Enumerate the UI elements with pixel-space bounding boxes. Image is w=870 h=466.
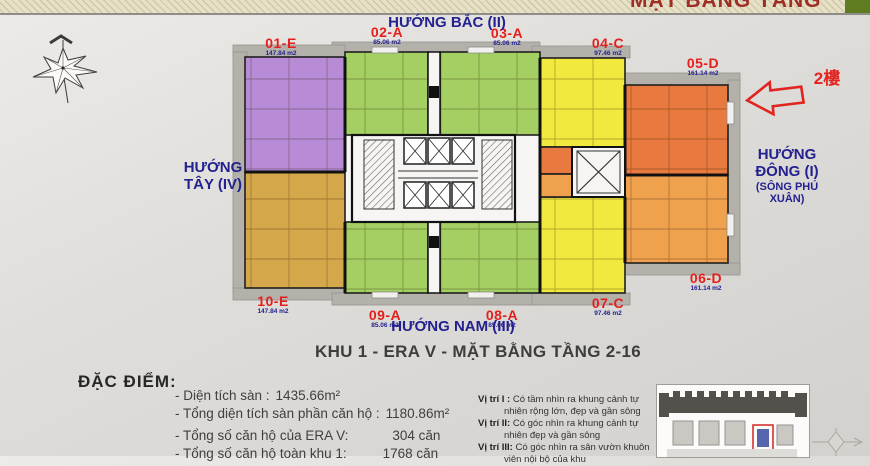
direction-west-label: HƯỚNG TÂY (IV) <box>172 160 254 194</box>
unit-region-05-d-mid <box>540 147 572 174</box>
feature-row: - Tổng số căn hộ toàn khu 1:1768 căn <box>175 445 449 463</box>
direction-east-label: HƯỚNG ĐÔNG (I) (SÔNG PHÚ XUÂN) <box>744 147 830 205</box>
stair-left <box>364 140 394 209</box>
viewpoint-item: Vị trí III: Có góc nhìn ra sân vườn khuô… <box>478 442 664 465</box>
unit-label-06-d: 06-D161.14 m2 <box>690 271 722 293</box>
compass-small-icon <box>812 428 862 456</box>
stair-right <box>482 140 512 209</box>
feature-row: - Tổng diện tích sàn phần căn hộ :1180.8… <box>175 405 449 423</box>
site-map-highlight-blue <box>757 429 769 447</box>
features-heading: ĐẶC ĐIỂM: <box>78 372 177 392</box>
viewpoints-legend: Vị trí I : Có tầm nhìn ra khung cảnh tự … <box>478 394 664 466</box>
unit-label-07-c: 07-C97.46 m2 <box>592 296 624 318</box>
site-map-thumbnail <box>656 384 810 458</box>
features-list: - Diện tích sàn :1435.66m² - Tổng diện t… <box>175 387 449 463</box>
unit-label-10-e: 10-E147.84 m2 <box>257 294 289 316</box>
floor-annotation: 2樓 <box>814 64 840 89</box>
left-arrow-icon <box>746 80 805 117</box>
central-core <box>352 135 515 222</box>
direction-south-label: HƯỚNG NAM (III) <box>391 319 515 336</box>
site-map-drawing <box>657 385 809 457</box>
right-wing-core <box>572 147 625 197</box>
plan-title: KHU 1 - ERA V - MẶT BẰNG TẦNG 2-16 <box>315 342 641 362</box>
viewpoint-item: Vị trí I : Có tầm nhìn ra khung cảnh tự … <box>478 394 664 417</box>
unit-label-01-e: 01-E147.84 m2 <box>265 36 297 58</box>
unit-region-06-d-mid <box>540 174 572 197</box>
unit-label-05-d: 05-D161.14 m2 <box>687 56 719 78</box>
unit-label-04-c: 04-C97.46 m2 <box>592 36 624 58</box>
direction-north-label: HƯỚNG BẮC (II) <box>388 15 506 32</box>
feature-row: - Diện tích sàn :1435.66m² <box>175 387 449 405</box>
compass-rose-icon <box>33 36 97 103</box>
viewpoint-item: Vị trí II: Có góc nhìn ra khung cảnh tự … <box>478 418 664 441</box>
feature-row: - Tổng số căn hộ của ERA V:304 căn <box>175 427 449 445</box>
